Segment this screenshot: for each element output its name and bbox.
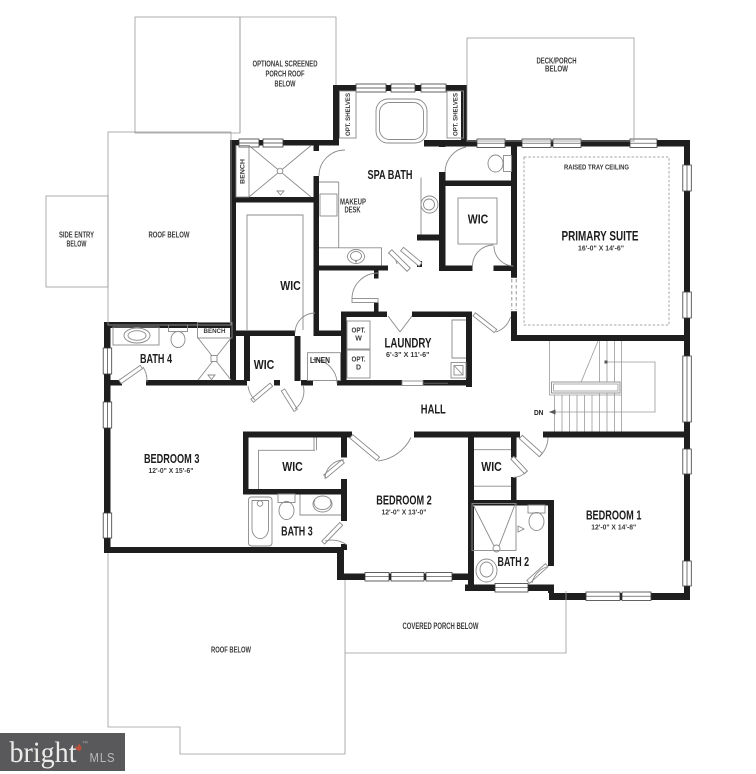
svg-text:DN: DN [534, 408, 544, 417]
svg-text:WIC: WIC [282, 459, 303, 474]
svg-text:6'-3" X 11'-6": 6'-3" X 11'-6" [386, 352, 430, 359]
svg-text:™: ™ [82, 740, 88, 747]
svg-text:ROOF BELOW: ROOF BELOW [211, 645, 252, 655]
svg-text:OPT.: OPT. [352, 357, 366, 364]
svg-text:BATH 3: BATH 3 [281, 524, 313, 539]
svg-text:16'-0" X 14'-6": 16'-0" X 14'-6" [578, 245, 624, 252]
svg-text:OPT. SHELVES: OPT. SHELVES [453, 92, 460, 136]
svg-text:BELOW: BELOW [67, 240, 87, 249]
svg-text:WIC: WIC [254, 357, 275, 372]
svg-text:D: D [356, 365, 361, 372]
svg-text:COVERED PORCH BELOW: COVERED PORCH BELOW [403, 621, 479, 631]
svg-text:MLS: MLS [90, 751, 116, 765]
svg-text:bright: bright [10, 736, 78, 769]
svg-text:12'-0" X 14'-8": 12'-0" X 14'-8" [591, 525, 636, 532]
svg-text:WIC: WIC [280, 278, 301, 293]
svg-text:RAISED TRAY CEILING: RAISED TRAY CEILING [564, 165, 629, 172]
svg-text:ROOF BELOW: ROOF BELOW [149, 230, 191, 240]
svg-text:PORCH ROOF: PORCH ROOF [266, 69, 305, 79]
svg-text:BEDROOM 3: BEDROOM 3 [144, 451, 200, 466]
svg-text:12'-0" X 15'-6": 12'-0" X 15'-6" [149, 468, 194, 475]
svg-text:OPT. SHELVES: OPT. SHELVES [345, 92, 352, 136]
svg-text:BEDROOM 2: BEDROOM 2 [376, 493, 432, 508]
svg-text:BELOW: BELOW [275, 79, 297, 89]
svg-text:LINEN: LINEN [310, 355, 330, 365]
svg-text:BENCH: BENCH [204, 329, 226, 335]
svg-text:WIC: WIC [481, 459, 502, 474]
svg-text:PRIMARY SUITE: PRIMARY SUITE [562, 228, 639, 244]
svg-text:W: W [355, 336, 362, 343]
svg-text:WIC: WIC [468, 212, 489, 227]
svg-text:LAUNDRY: LAUNDRY [385, 336, 432, 351]
svg-text:BATH 4: BATH 4 [140, 351, 173, 366]
svg-text:BELOW: BELOW [545, 64, 569, 74]
svg-text:BEDROOM 1: BEDROOM 1 [586, 507, 642, 522]
svg-text:12'-0" X 13'-0": 12'-0" X 13'-0" [382, 510, 427, 517]
svg-text:SPA BATH: SPA BATH [368, 167, 413, 182]
svg-text:OPTIONAL SCREENED: OPTIONAL SCREENED [253, 59, 318, 69]
svg-text:SIDE ENTRY: SIDE ENTRY [59, 231, 94, 240]
svg-text:DESK: DESK [345, 206, 361, 215]
svg-text:HALL: HALL [421, 402, 446, 417]
svg-text:BATH 2: BATH 2 [498, 554, 530, 569]
svg-text:BENCH: BENCH [241, 159, 247, 184]
svg-text:OPT.: OPT. [352, 328, 366, 335]
